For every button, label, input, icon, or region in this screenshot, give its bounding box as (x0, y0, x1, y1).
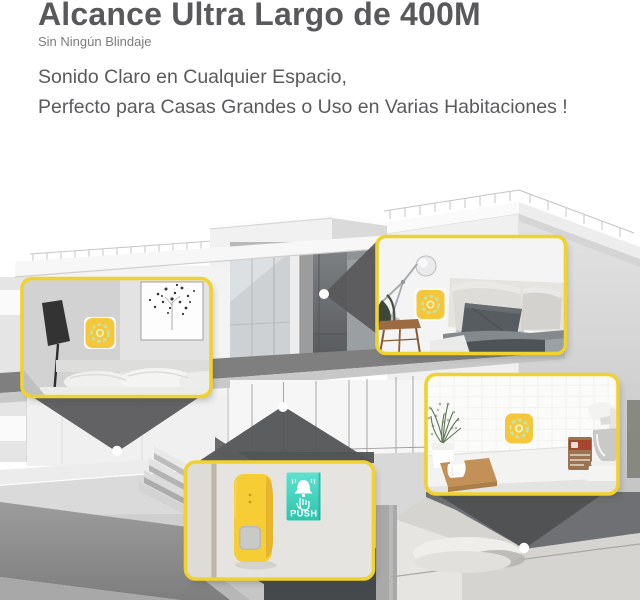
svg-text:PUSH: PUSH (290, 509, 317, 519)
